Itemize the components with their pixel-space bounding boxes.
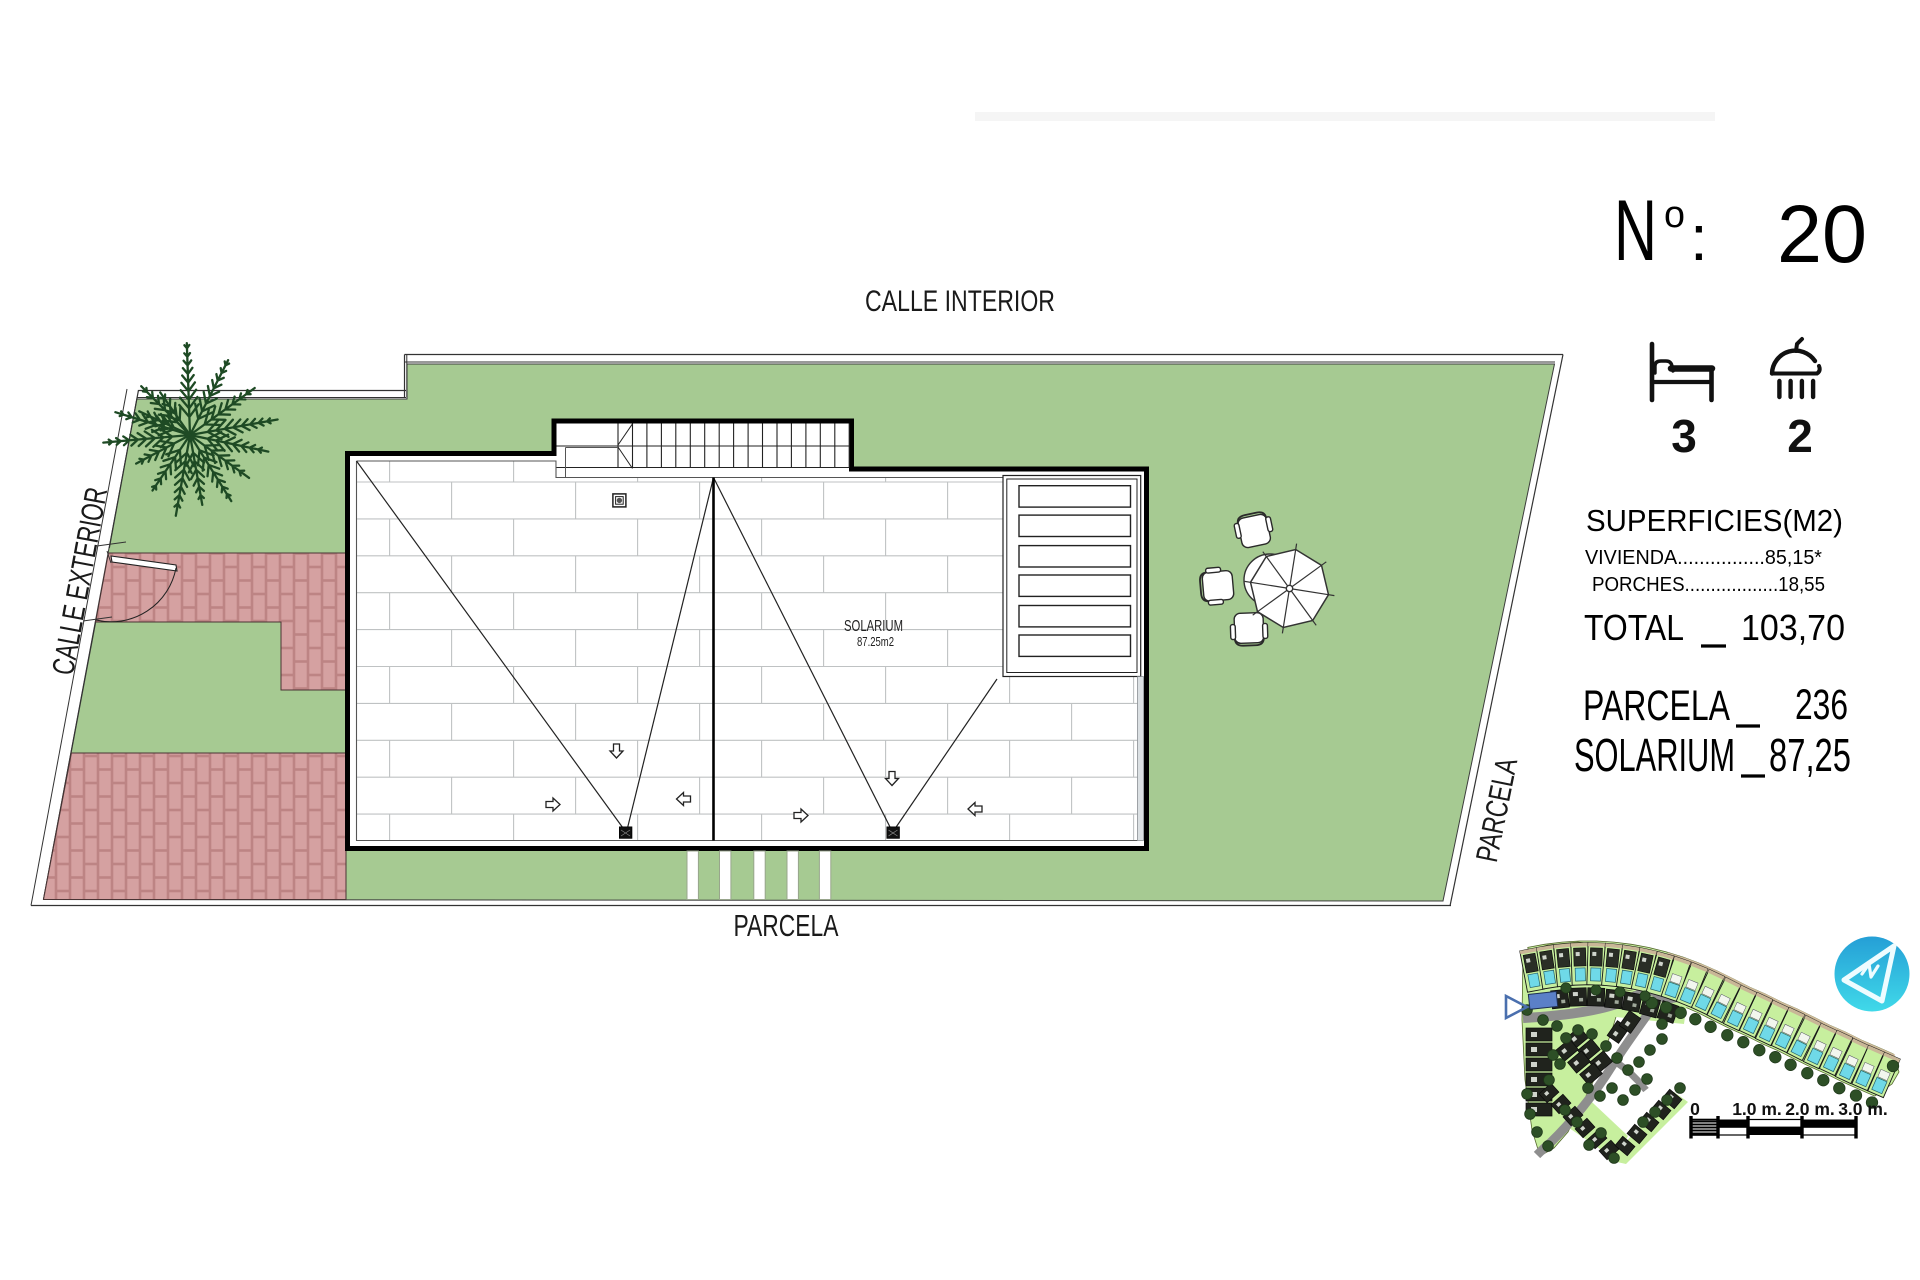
svg-text:SUPERFICIES(M2): SUPERFICIES(M2): [1586, 503, 1843, 538]
svg-text:SOLARIUM: SOLARIUM: [844, 618, 903, 635]
svg-text:20: 20: [1777, 189, 1867, 280]
svg-text:103,70: 103,70: [1741, 607, 1845, 648]
svg-text:PARCELA: PARCELA: [1583, 682, 1730, 730]
svg-text:236: 236: [1795, 681, 1848, 729]
svg-text:2.0 m.: 2.0 m.: [1785, 1099, 1835, 1119]
svg-text:TOTAL: TOTAL: [1584, 607, 1684, 648]
svg-text:2: 2: [1787, 410, 1813, 462]
svg-text:o: o: [1664, 194, 1685, 236]
svg-text:CALLE INTERIOR: CALLE INTERIOR: [865, 285, 1055, 318]
svg-text::: :: [1690, 202, 1708, 274]
svg-text:PORCHES..................18,55: PORCHES..................18,55: [1592, 573, 1825, 596]
svg-text:VIVIENDA................85,15*: VIVIENDA................85,15*: [1585, 546, 1822, 569]
svg-text:87.25m2: 87.25m2: [857, 634, 894, 649]
svg-text:PARCELA: PARCELA: [734, 908, 839, 943]
svg-text:3: 3: [1671, 410, 1697, 462]
svg-text:1.0 m.: 1.0 m.: [1732, 1099, 1782, 1119]
svg-text:87,25: 87,25: [1769, 729, 1851, 781]
svg-text:3.0 m.: 3.0 m.: [1838, 1099, 1888, 1119]
svg-text:SOLARIUM: SOLARIUM: [1574, 729, 1735, 781]
svg-text:N: N: [1614, 183, 1657, 279]
